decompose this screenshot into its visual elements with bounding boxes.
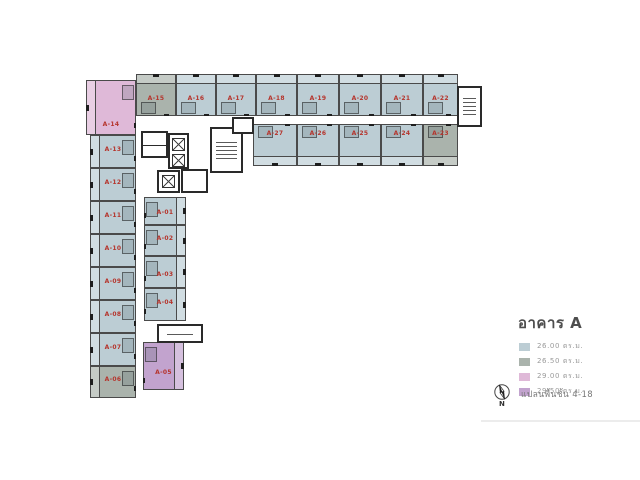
bathroom [428, 102, 443, 114]
floor-range-note: แปลนพื้นชั้น 4-18 [521, 387, 593, 401]
bathroom [344, 102, 359, 114]
mailbox-hatch-icon [167, 332, 192, 336]
stair-treads-icon [463, 98, 476, 114]
compass-note-row: N แปลนพื้นชั้น 4-18 [492, 383, 593, 410]
unit-A-12: A-12 [90, 168, 136, 201]
unit-label: A-18 [257, 96, 296, 102]
unit-label: A-01 [145, 210, 185, 216]
entry-door [144, 244, 146, 249]
stair-treads-icon [216, 141, 237, 160]
entry-door [134, 354, 136, 359]
floorplan-page: A-14A-13A-12A-11A-10A-09A-08A-07A-06A-01… [0, 0, 640, 480]
balcony-divider-tick [438, 74, 444, 77]
unit-label: A-11 [91, 213, 135, 219]
balcony-divider-tick [315, 74, 321, 77]
unit-A-25: A-25 [339, 124, 381, 166]
bathroom [145, 347, 157, 362]
entry-door [134, 255, 136, 260]
entry-door [134, 189, 136, 194]
unit-label: A-05 [144, 370, 183, 376]
unit-A-09: A-09 [90, 267, 136, 300]
bathroom [386, 102, 401, 114]
unit-A-20: A-20 [339, 74, 381, 116]
unit-A-22: A-22 [423, 74, 458, 116]
balcony-divider-tick [193, 74, 199, 77]
legend-swatch-blue [519, 343, 530, 351]
stairwell-east-end [457, 86, 482, 127]
balcony-divider-tick [399, 163, 405, 166]
unit-A-07: A-07 [90, 333, 136, 366]
unit-label: A-17 [217, 96, 255, 102]
unit-A-23: A-23 [423, 124, 458, 166]
page-divider-line [481, 420, 640, 422]
unit-label: A-22 [424, 96, 457, 102]
entry-door [411, 124, 416, 126]
balcony-divider-tick [181, 363, 184, 369]
entry-door [244, 114, 249, 116]
unit-A-13: A-13 [90, 135, 136, 168]
unit-label: A-07 [91, 345, 135, 351]
unit-A-21: A-21 [381, 74, 423, 116]
balcony-divider-tick [357, 163, 363, 166]
compass-needle-icon [492, 383, 512, 401]
legend-area-label: 26.50 ตร.ม. [537, 356, 583, 367]
balcony-divider-tick [153, 74, 159, 77]
unit-A-15: A-15 [136, 74, 176, 116]
unit-label: A-14 [87, 122, 135, 128]
unit-A-01: A-01 [144, 197, 186, 225]
entry-door [204, 114, 209, 116]
balcony-divider-tick [233, 74, 239, 77]
unit-label: A-27 [254, 131, 296, 137]
room-divider [143, 145, 166, 146]
balcony-divider-tick [272, 163, 278, 166]
compass-icon: N [492, 383, 512, 410]
entry-door [369, 114, 374, 116]
balcony-divider-tick [86, 105, 89, 111]
unit-A-03: A-03 [144, 256, 186, 288]
unit-label: A-08 [91, 312, 135, 318]
unit-label: A-21 [382, 96, 422, 102]
balcony-divider-tick [399, 74, 405, 77]
unit-A-08: A-08 [90, 300, 136, 333]
balcony-divider-tick [274, 74, 280, 77]
service-room-east [181, 169, 208, 193]
unit-A-06: A-06 [90, 366, 136, 398]
mail-room [157, 324, 203, 343]
unit-label: A-03 [145, 272, 185, 278]
unit-label: A-16 [177, 96, 215, 102]
store-room [232, 117, 254, 134]
unit-label: A-26 [298, 131, 338, 137]
bathroom [221, 102, 236, 114]
legend-swatch-gray [519, 358, 530, 366]
legend-item: 29.00 ตร.ม. [519, 371, 638, 382]
unit-A-24: A-24 [381, 124, 423, 166]
bathroom [141, 102, 156, 114]
elevator-single [157, 170, 180, 193]
balcony-divider-tick [315, 163, 321, 166]
unit-label: A-10 [91, 246, 135, 252]
entry-door [144, 309, 146, 314]
unit-label: A-04 [145, 300, 185, 306]
unit-label: A-19 [298, 96, 338, 102]
bathroom [302, 102, 317, 114]
unit-A-27: A-27 [253, 124, 297, 166]
elevator-icon [172, 138, 185, 151]
entry-door [369, 124, 374, 126]
legend-title: อาคาร A [518, 311, 638, 335]
unit-A-14: A-14 [86, 80, 136, 135]
unit-label: A-15 [137, 96, 175, 102]
unit-A-11: A-11 [90, 201, 136, 234]
entry-door [411, 114, 416, 116]
service-rooms [141, 131, 168, 158]
unit-A-05: A-05 [143, 342, 184, 390]
unit-label: A-12 [91, 180, 135, 186]
unit-A-19: A-19 [297, 74, 339, 116]
legend-area-label: 26.00 ตร.ม. [537, 341, 583, 352]
elevator-icon [162, 175, 175, 188]
entry-door [164, 114, 169, 116]
bathroom [181, 102, 196, 114]
legend-area-label: 29.00 ตร.ม. [537, 371, 583, 382]
unit-A-02: A-02 [144, 225, 186, 256]
unit-label: A-20 [340, 96, 380, 102]
bathroom [261, 102, 276, 114]
legend-swatch-pink [519, 373, 530, 381]
unit-label: A-24 [382, 131, 422, 137]
unit-A-18: A-18 [256, 74, 297, 116]
entry-door [446, 124, 451, 126]
entry-door [446, 114, 451, 116]
legend-item: 26.50 ตร.ม. [519, 356, 638, 367]
unit-label: A-25 [340, 131, 380, 137]
entry-door [327, 114, 332, 116]
unit-A-04: A-04 [144, 288, 186, 321]
unit-label: A-23 [424, 131, 457, 137]
bathroom [122, 85, 134, 100]
balcony-divider-tick [357, 74, 363, 77]
entry-door [134, 321, 136, 326]
entry-door [143, 378, 145, 383]
elevator-bank [168, 133, 189, 169]
compass-north-label: N [499, 400, 505, 408]
unit-A-16: A-16 [176, 74, 216, 116]
entry-door [285, 114, 290, 116]
unit-label: A-09 [91, 279, 135, 285]
balcony-divider-tick [438, 163, 444, 166]
legend-item: 26.00 ตร.ม. [519, 341, 638, 352]
unit-A-17: A-17 [216, 74, 256, 116]
unit-label: A-02 [145, 236, 185, 242]
unit-label: A-06 [91, 377, 135, 383]
unit-A-10: A-10 [90, 234, 136, 267]
entry-door [285, 124, 290, 126]
entry-door [134, 156, 136, 161]
entry-door [134, 288, 136, 293]
entry-door [134, 386, 136, 391]
entry-door [134, 222, 136, 227]
entry-door [327, 124, 332, 126]
elevator-icon [172, 154, 185, 167]
unit-A-26: A-26 [297, 124, 339, 166]
unit-label: A-13 [91, 147, 135, 153]
